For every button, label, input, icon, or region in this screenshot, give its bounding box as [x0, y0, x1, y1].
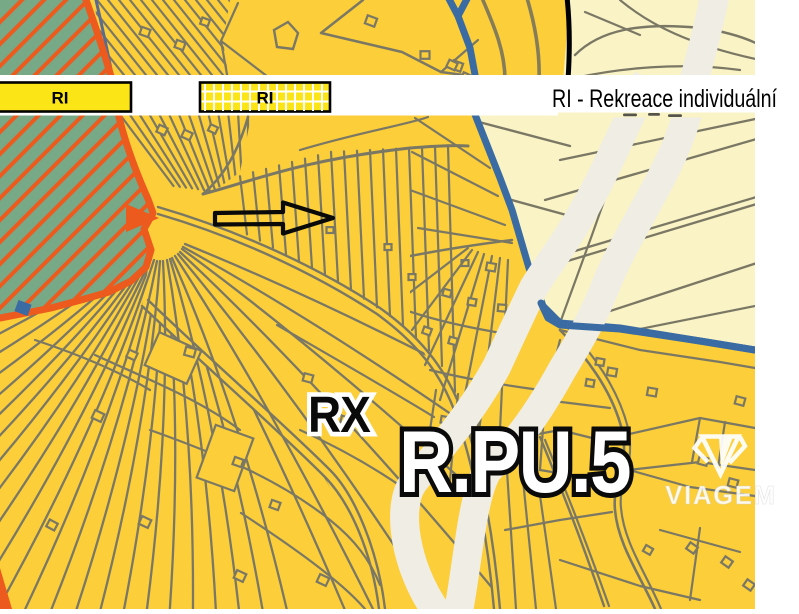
svg-text:RX: RX — [308, 387, 371, 444]
svg-text:VIAGEM: VIAGEM — [665, 482, 776, 510]
svg-text:RI - Rekreace individuální: RI - Rekreace individuální — [552, 85, 777, 113]
svg-text:RI: RI — [52, 89, 69, 108]
svg-text:RI: RI — [257, 89, 274, 108]
svg-text:R.PU.5: R.PU.5 — [399, 413, 630, 511]
